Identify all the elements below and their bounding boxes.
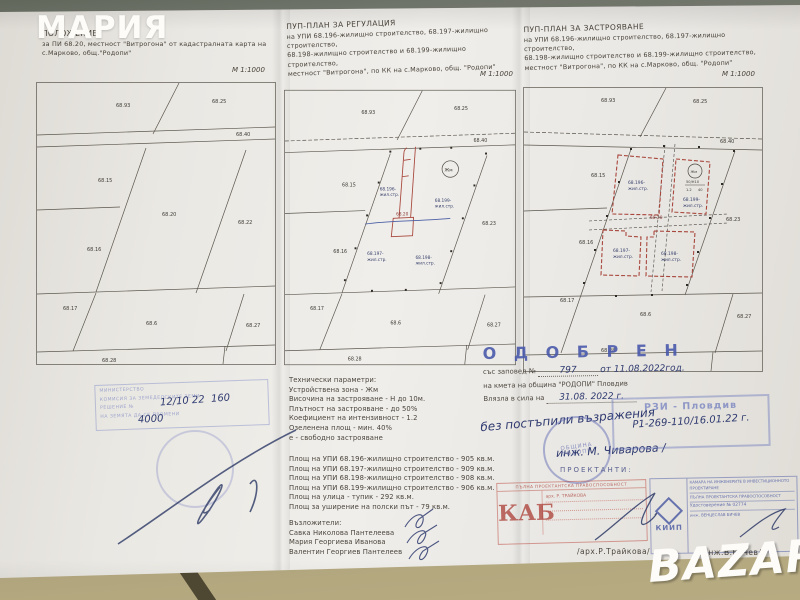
big-pen-signature xyxy=(100,392,310,557)
area-line: Площ на УПИ 68.199-жилищно строителство … xyxy=(289,484,504,494)
tech-line: Озеленена площ - мин. 40% xyxy=(289,424,504,434)
street-label: 68.20 xyxy=(650,215,663,221)
order-date: от 11.08.2022год. xyxy=(600,364,685,375)
rzi-stamp: РЗИ - Пловдив Р1-269-110/16.01.22 г. xyxy=(611,394,770,450)
upi-label: 68.197- xyxy=(367,251,384,257)
parcel-label: 68.93 xyxy=(361,110,375,116)
parcel-label: 68.15 xyxy=(342,182,356,188)
upi-label: 68.196- xyxy=(628,180,645,186)
panel3-scale: М 1:1000 xyxy=(722,70,755,78)
road-label: 68.40 xyxy=(236,132,250,138)
parcel-label: 68.27 xyxy=(737,314,751,320)
tech-line: е - свободно застрояване xyxy=(289,434,504,444)
upi-label: жил.стр. xyxy=(380,193,400,198)
tech-line: Плътност на застрояване - до 50% xyxy=(289,405,504,415)
parcel-label: 68.6 xyxy=(640,312,651,318)
parcel-label: 68.6 xyxy=(390,321,401,327)
parcel-label: 68.28 xyxy=(102,358,116,364)
panel1-subtitle: с.Марково, общ."Родопи" xyxy=(42,49,272,58)
kiip-line: КАМАРА НА ИНЖЕНЕРИТЕ В ИНВЕСТИЦИОННОТО П… xyxy=(689,478,794,492)
road-label: 68.40 xyxy=(473,138,487,144)
order-number: 797 xyxy=(559,365,576,375)
upi-label: жил.стр. xyxy=(683,204,703,209)
road-label: 68.40 xyxy=(720,139,734,145)
upi-label: 68.198- xyxy=(415,255,432,261)
parcel-label: 68.23 xyxy=(726,217,740,223)
upi-label: жил.стр. xyxy=(435,205,455,210)
panel3-header: ПУП-ПЛАН ЗА ЗАСТРОЯВАНЕ на УПИ 68.196-жи… xyxy=(523,19,762,73)
upi-label: жил.стр. xyxy=(661,258,681,263)
approved-title: О Д О Б Р Е Н xyxy=(482,340,717,363)
area-line: Площ на УПИ 68.197-жилищно строителство … xyxy=(289,465,504,475)
zone-label: Жм xyxy=(691,170,698,174)
upi-label: 68.199- xyxy=(683,197,700,203)
zone-param: 1.2 xyxy=(686,188,692,192)
parcel-label: 68.22 xyxy=(238,220,252,226)
rzi-handwritten-ref: Р1-269-110/16.01.22 г. xyxy=(614,411,768,431)
parcel-label: 68.27 xyxy=(246,323,260,329)
parcel-label: 68.6 xyxy=(146,321,157,327)
tech-line: Устройствена зона - Жм xyxy=(289,386,504,396)
parcel-label: 68.93 xyxy=(601,98,615,104)
marketplace-watermark-top: МАРИЯ xyxy=(36,10,168,46)
upi-label: жил.стр. xyxy=(367,258,387,263)
parcel-label: 68.16 xyxy=(333,249,347,255)
parcel-label: 68.16 xyxy=(87,247,101,253)
technical-parameters: Технически параметри: Устройствена зона … xyxy=(289,376,504,443)
parcel-label: 68.25 xyxy=(212,99,226,105)
upi-label: жил.стр. xyxy=(628,187,648,192)
zone-label: Жм xyxy=(444,167,452,173)
upi-label: жил.стр. xyxy=(613,255,633,260)
street-label: 68.20 xyxy=(396,211,408,217)
parcel-label: 68.27 xyxy=(487,323,501,329)
panel2-scale: М 1:1000 xyxy=(480,70,513,78)
cadastral-map-existing: 68.93 68.25 68.40 68.15 68.20 68.22 68.1… xyxy=(36,82,276,365)
parcel-label: 68.25 xyxy=(693,99,707,105)
kab-logo: КАБ xyxy=(497,491,543,536)
upi-label: 68.198- xyxy=(661,251,678,257)
parcel-label: 68.16 xyxy=(579,240,593,246)
mayor-line: на кмета на община "РОДОПИ" Пловдив xyxy=(483,378,718,390)
upi-label: жил.стр. xyxy=(415,262,435,267)
parcel-label: 68.93 xyxy=(116,103,130,109)
zone-param: 50/Н10 xyxy=(686,180,700,184)
tech-line: Височина на застрояване - Н до 10м. xyxy=(289,395,504,405)
parcel-label: 68.17 xyxy=(310,306,324,312)
upi-label: 68.199- xyxy=(435,198,452,204)
client-signatures xyxy=(385,505,460,565)
cadastral-map-building: Жм 50/Н10 1.2 40 68.93 68.25 68.40 68.15… xyxy=(521,87,765,372)
order-label: със заповед № xyxy=(483,367,536,376)
parcel-label: 68.17 xyxy=(63,306,77,312)
tech-line: Коефициент на интензивност - 1.2 xyxy=(289,414,504,424)
parcel-label: 68.28 xyxy=(348,356,362,362)
tech-heading: Технически параметри: xyxy=(289,376,504,386)
marketplace-watermark-bottom: BAZAR xyxy=(646,530,800,593)
cadastral-map-regulation: Жм 68.93 68.25 68.40 68.15 68.23 68.16 6… xyxy=(284,85,516,370)
upi-label: 68.197- xyxy=(613,248,630,254)
photographed-planning-document: ПОЛОЖЕНИЕ за ПИ 68.20, местност "Витрого… xyxy=(0,0,800,600)
upi-label: 68.196- xyxy=(380,186,397,192)
area-line: Площ на улица - тупик - 292 кв.м. xyxy=(289,493,504,503)
parcel-label: 68.25 xyxy=(454,106,468,112)
panel1-scale: М 1:1000 xyxy=(232,66,265,74)
effective-label: Влязла в сила на xyxy=(483,394,544,403)
architect-signature xyxy=(585,485,665,550)
designers-label: ПРОЕКТАНТИ: xyxy=(560,466,633,474)
parcel-label: 68.20 xyxy=(162,212,176,218)
area-line: Площ на УПИ 68.196-жилищно строителство … xyxy=(289,455,504,465)
area-list: Площ на УПИ 68.196-жилищно строителство … xyxy=(289,455,504,513)
parcel-label: 68.15 xyxy=(591,173,605,179)
parcel-label: 68.23 xyxy=(482,221,496,227)
parcel-label: 68.17 xyxy=(560,298,574,304)
parcel-label: 68.15 xyxy=(98,178,112,184)
area-line: Площ на УПИ 68.198-жилищно строителство … xyxy=(289,474,504,484)
paper-sheet: ПОЛОЖЕНИЕ за ПИ 68.20, местност "Витрого… xyxy=(0,0,800,600)
zone-param: 40 xyxy=(698,188,703,192)
